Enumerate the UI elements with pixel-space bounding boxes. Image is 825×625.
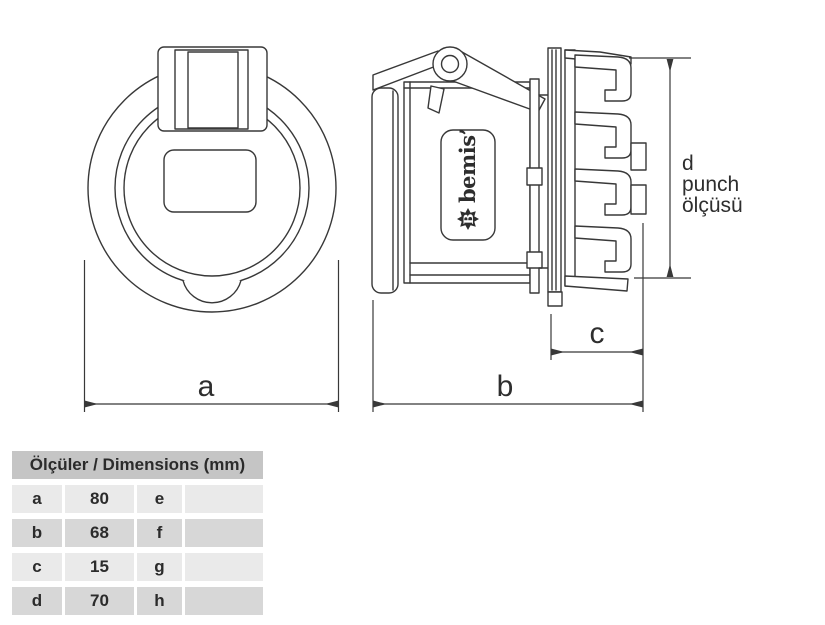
dim-value-cell: 70 [65, 587, 134, 615]
rib-base [565, 50, 575, 286]
table-row: d 70 h [12, 587, 263, 615]
dimensions-table: Ölçüler / Dimensions (mm) a 80 e b 68 f … [12, 451, 263, 615]
rib-hook-2 [575, 112, 631, 158]
dimension-label-b: b [497, 370, 514, 403]
technical-drawing: B bemis’ [0, 0, 825, 448]
product-dimension-drawing-page: B bemis’ [0, 0, 825, 625]
dim-value-cell: 68 [65, 519, 134, 547]
table-header: Ölçüler / Dimensions (mm) [12, 451, 263, 479]
dim-value-cell [185, 587, 263, 615]
table-row: b 68 f [12, 519, 263, 547]
dim-value-cell: 15 [65, 553, 134, 581]
dimension-label-d-olcusu: ölçüsü [682, 194, 743, 217]
rib-bottom-cap [565, 276, 628, 291]
flange-plate [548, 48, 561, 292]
dim-key-cell: b [12, 519, 62, 547]
rib-hook-1 [575, 55, 631, 101]
front-label-window [164, 150, 256, 212]
front-view [88, 47, 336, 312]
rib-hook-4 [575, 226, 631, 272]
dim-value-cell [185, 553, 263, 581]
dim-key-cell: d [12, 587, 62, 615]
rib-hook-3 [575, 169, 631, 215]
brand-badge-letter: B [462, 214, 477, 225]
side-lid [372, 88, 398, 293]
front-bottom-tab [183, 281, 241, 303]
dimension-label-c: c [590, 317, 605, 350]
dim-key-cell: g [137, 553, 182, 581]
dim-value-cell [185, 519, 263, 547]
dim-value-cell [185, 485, 263, 513]
dim-value-cell: 80 [65, 485, 134, 513]
dimension-label-a: a [198, 370, 215, 403]
collar-key-top [527, 168, 542, 185]
dimension-label-d-punch: punch [682, 173, 739, 196]
collar-key-bottom [527, 252, 542, 268]
dim-key-cell: f [137, 519, 182, 547]
dimension-label-d: d [682, 152, 694, 175]
latch-pivot [433, 47, 467, 81]
dim-key-cell: h [137, 587, 182, 615]
mount-tab-top [631, 143, 646, 170]
dim-key-cell: c [12, 553, 62, 581]
table-row: a 80 e [12, 485, 263, 513]
side-view: B bemis’ [372, 47, 646, 306]
brand-logo-text: bemis’ [455, 129, 480, 203]
dim-key-cell: a [12, 485, 62, 513]
hinge-tab-inner [188, 52, 238, 128]
flange-foot [548, 292, 562, 306]
mount-tab-bottom [631, 185, 646, 214]
table-row: c 15 g [12, 553, 263, 581]
dim-key-cell: e [137, 485, 182, 513]
